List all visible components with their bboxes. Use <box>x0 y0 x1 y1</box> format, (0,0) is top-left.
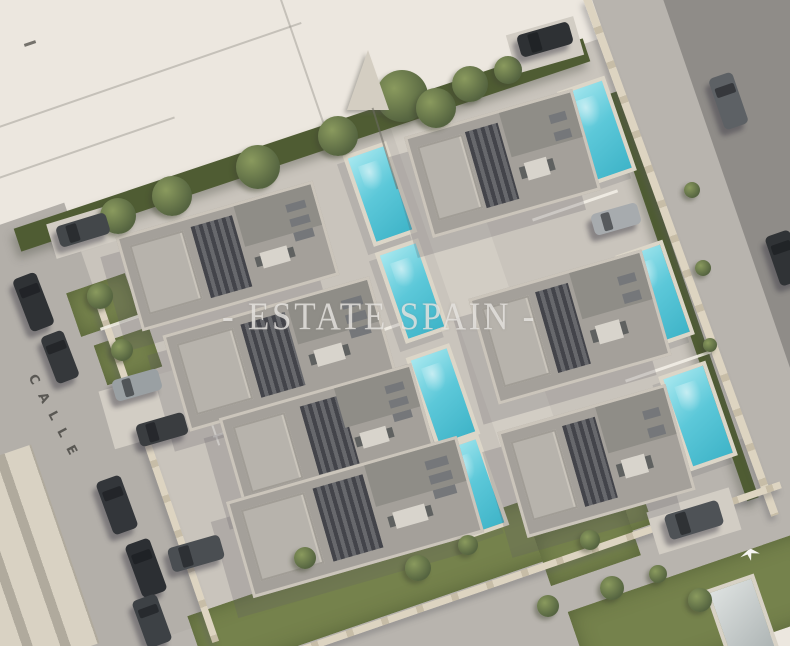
roof-table <box>260 245 291 269</box>
roof-table <box>393 503 429 528</box>
roof-table <box>595 320 624 345</box>
bush <box>684 182 700 198</box>
seam-mark <box>24 40 36 47</box>
roof-table <box>621 454 649 479</box>
bush <box>494 56 522 84</box>
seam-line <box>275 0 326 126</box>
bush <box>236 145 280 189</box>
bush <box>416 88 456 128</box>
bush <box>111 339 133 361</box>
bush <box>703 338 717 352</box>
bush <box>87 283 113 309</box>
roof-table <box>524 157 552 181</box>
car-windshield <box>600 212 614 232</box>
bush <box>688 588 712 612</box>
bush <box>452 66 488 102</box>
car-windshield <box>18 283 40 300</box>
car-windshield <box>46 340 67 355</box>
seam-line <box>0 116 175 183</box>
car-windshield <box>130 549 153 566</box>
car-windshield <box>714 82 736 98</box>
roof-table <box>313 342 346 366</box>
bush <box>152 176 192 216</box>
car-windshield <box>770 240 790 256</box>
roof-panel <box>129 230 202 314</box>
bush <box>458 535 478 555</box>
roof-table <box>359 426 390 449</box>
bush <box>318 116 358 156</box>
bush <box>600 576 624 600</box>
car-windshield <box>527 32 543 53</box>
aerial-render: CALLE - ESTATE SPAIN - <box>0 0 790 646</box>
car-windshield <box>121 378 135 398</box>
roof-panel <box>177 328 253 415</box>
roof-panel <box>241 492 324 581</box>
car-windshield <box>178 545 194 568</box>
bush <box>649 565 667 583</box>
bush <box>537 595 559 617</box>
bush <box>405 555 431 581</box>
watermark: - ESTATE SPAIN - <box>222 294 537 339</box>
bush <box>580 530 600 550</box>
car-windshield <box>145 422 160 443</box>
car-windshield <box>675 511 692 535</box>
seam-line <box>0 22 302 128</box>
bush <box>695 260 711 276</box>
pyramid-structure <box>347 50 389 110</box>
car-windshield <box>137 603 160 619</box>
bush <box>294 547 316 569</box>
car-windshield <box>65 223 80 243</box>
roof-panel <box>232 412 303 494</box>
car-windshield <box>101 486 124 503</box>
